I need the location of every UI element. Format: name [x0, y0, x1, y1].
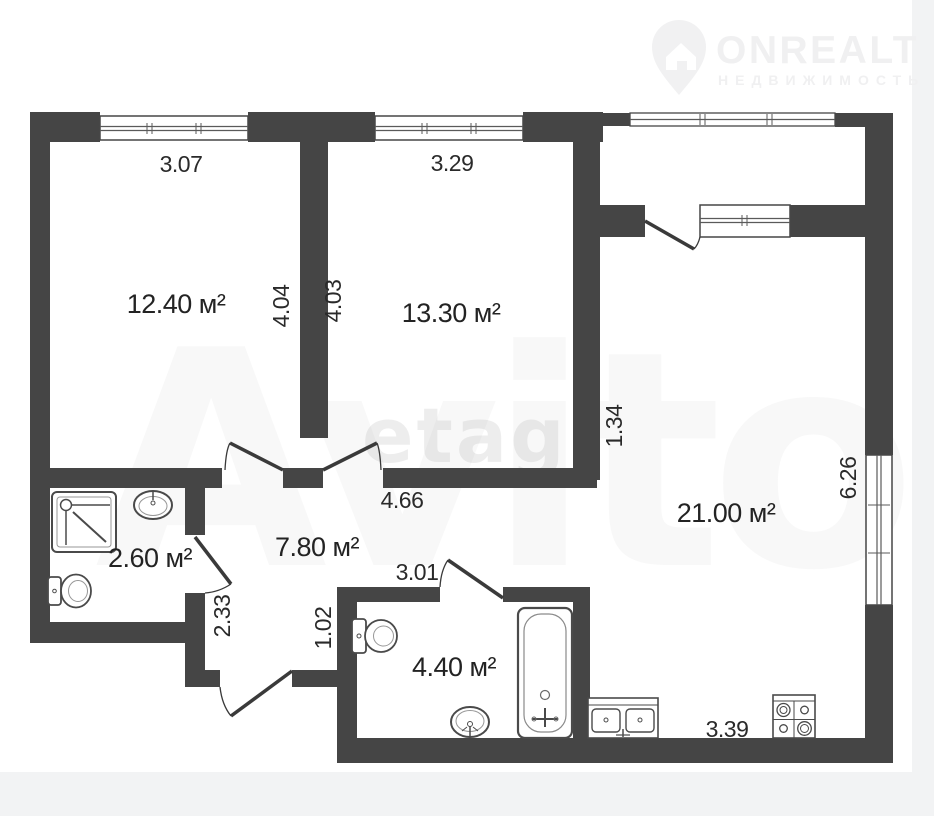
dim-top-bedroom2: 3.29: [431, 150, 474, 176]
wall: [357, 587, 440, 602]
washbasin-icon: [451, 707, 489, 737]
wall-bathroom-left: [337, 587, 357, 763]
wall-right-upper: [865, 126, 893, 455]
floorplan-svg: Avito etagi ONREALT НЕДВИЖИМОСТЬ: [0, 0, 934, 816]
wall: [383, 468, 597, 488]
wall-balcony: [790, 205, 865, 237]
dim-hall-width: 4.66: [381, 487, 424, 513]
dim-living-height: 6.26: [835, 457, 861, 500]
wall: [185, 468, 205, 535]
logo-tagline-text: НЕДВИЖИМОСТЬ: [718, 72, 925, 88]
window-balcony-glazing: [630, 113, 835, 126]
dim-hall-left: 2.33: [209, 595, 235, 638]
kitchen-sink-icon: [588, 698, 658, 738]
dim-living-opening: 1.34: [601, 404, 627, 447]
page-margin-bottom: [0, 772, 934, 816]
wall-living-divider: [573, 112, 600, 480]
bathtub-icon: [518, 608, 572, 738]
wall: [185, 670, 220, 687]
stove-icon: [773, 695, 815, 738]
dim-top-bedroom1: 3.07: [160, 151, 203, 177]
wall-wc-bottom: [30, 622, 202, 643]
logo-brand-text: ONREALT: [716, 29, 919, 72]
dim-right-bedroom1: 4.04: [268, 284, 294, 327]
wall: [248, 112, 375, 142]
room-label-bedroom1: 12.40 м²: [127, 289, 226, 319]
dim-kitchen-width: 3.39: [706, 716, 749, 742]
dim-bathroom-width: 3.01: [396, 559, 439, 585]
room-label-living: 21.00 м²: [677, 498, 776, 528]
room-label-hall: 7.80 м²: [275, 532, 360, 562]
page-margin-right: [912, 0, 934, 816]
dim-left-bedroom2: 4.03: [320, 280, 346, 323]
room-label-wc: 2.60 м²: [108, 543, 193, 573]
washbasin-icon: [134, 491, 172, 519]
wall-balcony: [600, 205, 645, 237]
wall: [603, 113, 630, 126]
window-balcony-inner: [700, 205, 790, 237]
room-label-bathroom: 4.40 м²: [412, 652, 497, 682]
room-label-bedroom2: 13.30 м²: [402, 298, 501, 328]
toilet-icon: [352, 619, 397, 653]
wall: [835, 113, 893, 127]
toilet-icon: [48, 575, 91, 608]
window-bedroom2: [375, 116, 523, 140]
window-bedroom1: [100, 116, 248, 140]
watermark-etagi: etagi: [362, 391, 597, 480]
window-living: [866, 455, 892, 605]
wall-left: [30, 112, 50, 643]
wall: [283, 468, 323, 488]
shower-icon: [52, 492, 116, 552]
wall-bottom: [337, 738, 893, 763]
dim-hall-right: 1.02: [310, 607, 336, 650]
floorplan-photo: Avito etagi ONREALT НЕДВИЖИМОСТЬ: [0, 0, 934, 816]
